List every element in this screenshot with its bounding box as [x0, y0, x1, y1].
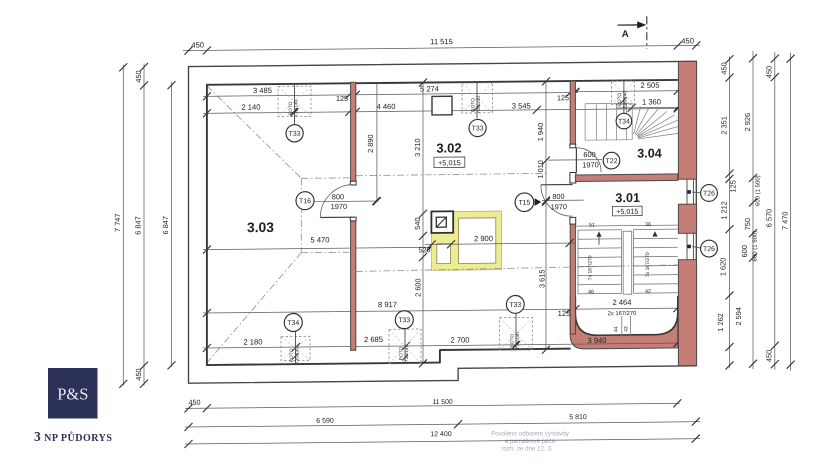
svg-text:2 900: 2 900 — [474, 234, 493, 243]
svg-text:2 351: 2 351 — [719, 116, 728, 135]
svg-text:7 747: 7 747 — [113, 213, 122, 232]
svg-text:36: 36 — [645, 222, 651, 228]
svg-text:1970: 1970 — [331, 202, 347, 211]
svg-text:5 470: 5 470 — [310, 235, 329, 244]
svg-text:ROTO: ROTO — [617, 93, 623, 107]
svg-text:7x 167/270: 7x 167/270 — [587, 255, 593, 280]
svg-text:ROTO: ROTO — [398, 346, 404, 360]
svg-text:125: 125 — [557, 93, 569, 102]
svg-text:1 620: 1 620 — [718, 258, 727, 277]
svg-text:1 360: 1 360 — [642, 97, 661, 106]
svg-text:450: 450 — [765, 350, 774, 362]
svg-text:T26: T26 — [703, 190, 715, 197]
svg-text:600: 600 — [740, 245, 749, 257]
svg-text:ROTO: ROTO — [289, 348, 295, 362]
svg-text:2 505: 2 505 — [640, 81, 659, 90]
svg-text:a památkové péče: a památkové péče — [505, 438, 556, 445]
svg-text:1 940: 1 940 — [536, 123, 545, 142]
svg-text:T16: T16 — [299, 198, 311, 205]
svg-text:T33: T33 — [398, 317, 410, 324]
svg-text:6 570: 6 570 — [765, 209, 774, 228]
svg-text:3.04: 3.04 — [637, 146, 662, 160]
svg-text:T26: T26 — [703, 246, 715, 253]
svg-text:125: 125 — [336, 94, 348, 103]
svg-text:7 470: 7 470 — [780, 212, 789, 231]
svg-text:1 262: 1 262 — [716, 313, 725, 332]
svg-text:6 847: 6 847 — [134, 216, 143, 235]
svg-text:12 400: 12 400 — [430, 431, 452, 438]
svg-text:600 (1 500): 600 (1 500) — [756, 175, 762, 206]
svg-text:A: A — [622, 29, 629, 40]
svg-text:T34: T34 — [287, 320, 299, 327]
svg-text:T15: T15 — [518, 200, 530, 207]
svg-text:2 464: 2 464 — [612, 298, 631, 307]
svg-text:44: 44 — [614, 326, 620, 332]
svg-text:735/140: 735/140 — [622, 91, 628, 109]
svg-text:3 485: 3 485 — [253, 86, 272, 95]
svg-text:2 180: 2 180 — [243, 337, 262, 346]
svg-text:540: 540 — [413, 217, 422, 229]
svg-text:7x 167/270: 7x 167/270 — [645, 252, 651, 277]
svg-text:42: 42 — [645, 289, 651, 295]
svg-text:ROTO: ROTO — [470, 98, 476, 112]
svg-text:800: 800 — [332, 192, 344, 201]
svg-text:2 890: 2 890 — [366, 134, 375, 153]
svg-text:2 700: 2 700 — [450, 335, 469, 344]
svg-text:450: 450 — [681, 36, 694, 45]
svg-text:3.01: 3.01 — [615, 191, 640, 205]
svg-text:3 615: 3 615 — [537, 270, 546, 289]
svg-text:Povoleno odborem výstavby: Povoleno odborem výstavby — [491, 431, 570, 438]
svg-text:T33: T33 — [472, 125, 484, 132]
svg-text:800: 800 — [552, 192, 564, 201]
svg-text:750: 750 — [743, 218, 752, 230]
svg-text:11 500: 11 500 — [432, 399, 453, 406]
svg-text:T33: T33 — [289, 131, 301, 138]
svg-text:2 140: 2 140 — [241, 103, 260, 112]
svg-text:11 515: 11 515 — [430, 37, 453, 46]
svg-text:ROTO: ROTO — [288, 101, 294, 115]
svg-text:1 010: 1 010 — [536, 160, 545, 179]
svg-text:51: 51 — [589, 223, 595, 229]
svg-text:3.02: 3.02 — [436, 140, 461, 155]
svg-text:450: 450 — [134, 70, 143, 82]
svg-text:6 847: 6 847 — [161, 216, 170, 235]
svg-text:450: 450 — [765, 66, 774, 78]
svg-text:3 940: 3 940 — [587, 336, 606, 345]
svg-text:8 917: 8 917 — [378, 300, 397, 309]
svg-text:46: 46 — [588, 289, 594, 295]
svg-text:2 594: 2 594 — [734, 307, 743, 326]
svg-text:6 590: 6 590 — [316, 418, 334, 425]
svg-text:5 810: 5 810 — [569, 414, 587, 421]
svg-text:2 685: 2 685 — [364, 335, 383, 344]
svg-text:2 600: 2 600 — [414, 278, 423, 297]
svg-text:125: 125 — [729, 180, 738, 192]
svg-text:+5,015: +5,015 — [438, 158, 461, 167]
svg-text:3 210: 3 210 — [413, 138, 422, 157]
svg-text:450: 450 — [134, 368, 143, 380]
svg-text:T22: T22 — [606, 158, 618, 165]
svg-text:1970: 1970 — [551, 202, 567, 211]
svg-text:1 212: 1 212 — [719, 201, 728, 220]
svg-text:600 (1 500): 600 (1 500) — [752, 231, 758, 262]
svg-text:450: 450 — [191, 40, 204, 49]
svg-text:T33: T33 — [509, 302, 521, 309]
svg-text:450: 450 — [189, 398, 201, 407]
svg-text:125: 125 — [558, 309, 571, 318]
svg-text:2 926: 2 926 — [743, 113, 752, 132]
svg-text:450: 450 — [719, 62, 728, 74]
svg-text:3.03: 3.03 — [247, 220, 274, 235]
svg-text:+5,015: +5,015 — [616, 207, 638, 216]
svg-text:3 545: 3 545 — [512, 101, 531, 110]
svg-text:rozh. ze dne 12. 3.: rozh. ze dne 12. 3. — [501, 446, 553, 453]
svg-text:1970: 1970 — [582, 160, 598, 169]
svg-text:4 460: 4 460 — [376, 102, 395, 111]
svg-text:600: 600 — [583, 150, 595, 159]
svg-text:T34: T34 — [618, 119, 630, 126]
svg-text:P&S: P&S — [57, 385, 88, 404]
svg-text:43: 43 — [624, 326, 630, 332]
